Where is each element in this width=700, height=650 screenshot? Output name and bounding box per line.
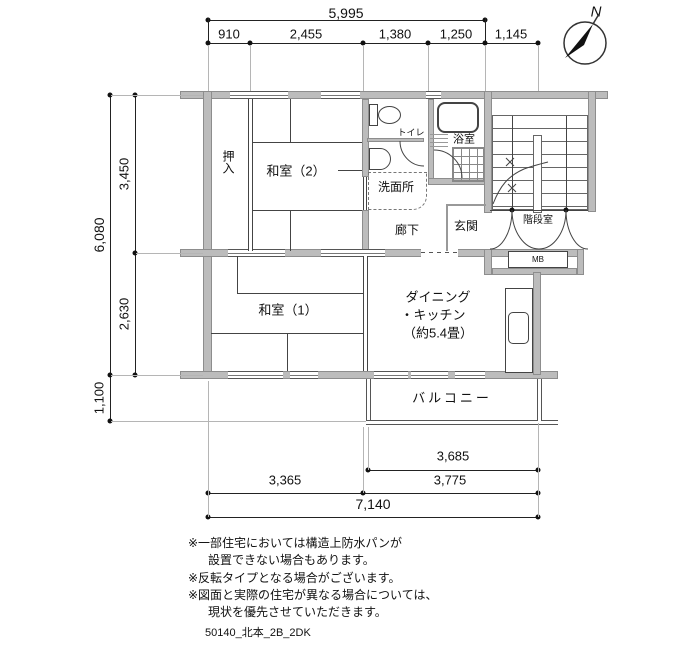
dim-bottom-left: 3,365 <box>269 474 302 487</box>
window-bottom-3 <box>374 371 408 379</box>
room-label-entrance: 玄関 <box>454 220 478 232</box>
wall-stair-left <box>484 91 492 213</box>
dim-left-balcony: 1,100 <box>93 382 106 415</box>
dim-top-seg-4: 1,250 <box>440 28 473 41</box>
bath-step-hatch <box>430 134 448 147</box>
extension-line <box>111 375 203 376</box>
dim-left-lower: 2,630 <box>118 298 131 331</box>
window-bottom-5 <box>455 371 485 379</box>
balcony-rail-bottom <box>366 420 558 425</box>
extension-line <box>250 45 251 91</box>
extension-line <box>368 427 369 470</box>
compass-icon <box>564 14 606 64</box>
extension-line <box>538 423 539 517</box>
wall-left-exterior <box>203 91 212 378</box>
room-label-dk-line2: ・キッチン <box>400 309 465 322</box>
wall-toilet-divider <box>367 138 424 142</box>
tatami-line <box>252 142 362 143</box>
door-hinge-dot <box>564 208 569 213</box>
room-label-washitsu2: 和室（2） <box>266 165 325 178</box>
dim-top-seg-5: 1,145 <box>495 28 528 41</box>
dim-connector <box>485 18 486 43</box>
extension-line <box>208 45 209 91</box>
room-label-meter-box: MB <box>532 256 544 264</box>
compass-north-label: N <box>591 5 602 20</box>
tatami-line <box>287 333 288 371</box>
opening-dash-line <box>421 252 458 253</box>
door-hinge-dot <box>510 208 515 213</box>
window-top-3 <box>426 91 441 99</box>
note-line-5: 現状を優先させていただきます。 <box>208 606 387 618</box>
dim-top-total: 5,995 <box>328 6 363 20</box>
partition-oshiire <box>248 99 253 251</box>
toilet-bowl <box>378 106 401 124</box>
room-label-washitsu1: 和室（1） <box>258 304 317 317</box>
note-line-3: ※反転タイプとなる場合がございます。 <box>188 572 401 584</box>
stair-hall-line <box>490 210 588 211</box>
floor-plan: 押入 和室（2） トイレ 浴室 洗面所 廊下 玄関 階段室 MB 和室（1） ダ… <box>0 0 700 650</box>
dim-connector <box>208 18 209 43</box>
extension-line <box>485 45 486 91</box>
window-bottom-4 <box>411 371 448 379</box>
extension-line <box>538 45 539 91</box>
note-line-1: ※一部住宅においては構造上防水パンが <box>188 537 402 549</box>
window-bottom-2 <box>290 371 318 379</box>
tatami-line <box>290 99 291 142</box>
sliding-door-washitsu2 <box>363 177 367 210</box>
toilet-tank <box>369 104 378 126</box>
balcony-rail-right <box>537 379 542 421</box>
extension-line <box>111 421 366 422</box>
room-label-toilet: トイレ <box>397 129 424 138</box>
room-label-balcony: バルコニー <box>412 392 492 405</box>
extension-line <box>428 45 429 91</box>
dim-left-total: 6,080 <box>92 217 106 252</box>
wall-kitchen-right <box>533 272 541 375</box>
wall-stair-right <box>588 91 596 212</box>
dim-line <box>135 95 136 375</box>
extension-line <box>111 95 203 96</box>
dim-line <box>208 43 538 44</box>
dim-left-upper: 3,450 <box>118 158 131 191</box>
wall-corridor-lower <box>362 210 369 251</box>
footer-label: 50140_北本_2B_2DK <box>205 628 311 639</box>
balcony-rail-left <box>366 379 371 425</box>
dim-line <box>208 517 538 518</box>
dim-line <box>208 20 485 21</box>
tatami-line <box>252 210 362 211</box>
window-bottom-1 <box>228 371 283 379</box>
washbasin <box>369 148 391 170</box>
extension-line <box>363 427 364 493</box>
dim-bottom-inner: 3,685 <box>437 450 470 463</box>
room-label-stairwell: 階段室 <box>523 216 553 226</box>
wall-mb-left <box>484 249 492 275</box>
dim-bottom-right: 3,775 <box>434 474 467 487</box>
label-leader-line <box>338 170 362 171</box>
extension-line <box>363 45 364 91</box>
wall-mb-right <box>577 249 584 275</box>
extension-line <box>208 381 209 517</box>
room-label-oshiire: 押入 <box>222 150 234 174</box>
dim-top-seg-2: 2,455 <box>290 28 323 41</box>
dim-line <box>208 493 538 494</box>
window-top-1 <box>230 91 288 99</box>
room-label-bath: 浴室 <box>453 135 475 146</box>
dim-top-seg-3: 1,380 <box>379 28 412 41</box>
window-top-2 <box>321 91 360 99</box>
stair-stringer <box>512 116 513 210</box>
room-label-dk-line1: ダイニング <box>405 291 470 304</box>
stair-stringer <box>566 116 567 210</box>
kitchen-sink <box>508 312 529 344</box>
tatami-line <box>290 210 291 251</box>
dim-top-seg-1: 910 <box>218 28 240 41</box>
extension-line <box>136 253 203 254</box>
stair-center-divider <box>533 135 542 213</box>
room-label-washroom: 洗面所 <box>378 181 414 193</box>
bath-tile-floor <box>452 147 484 182</box>
room-label-dk-line3: （約5.4畳） <box>403 327 473 340</box>
room-label-corridor: 廊下 <box>395 224 419 236</box>
window-middle-2 <box>321 249 385 257</box>
tatami-line <box>237 293 363 294</box>
note-line-2: 設置できない場合もあります。 <box>208 554 375 566</box>
partition-washitsu1-dk <box>363 256 368 371</box>
bathtub <box>437 102 479 133</box>
dim-bottom-total: 7,140 <box>355 497 390 511</box>
tatami-line <box>237 256 238 293</box>
note-line-4: ※図面と実際の住宅が異なる場合については、 <box>188 589 437 601</box>
dim-line <box>368 470 538 471</box>
